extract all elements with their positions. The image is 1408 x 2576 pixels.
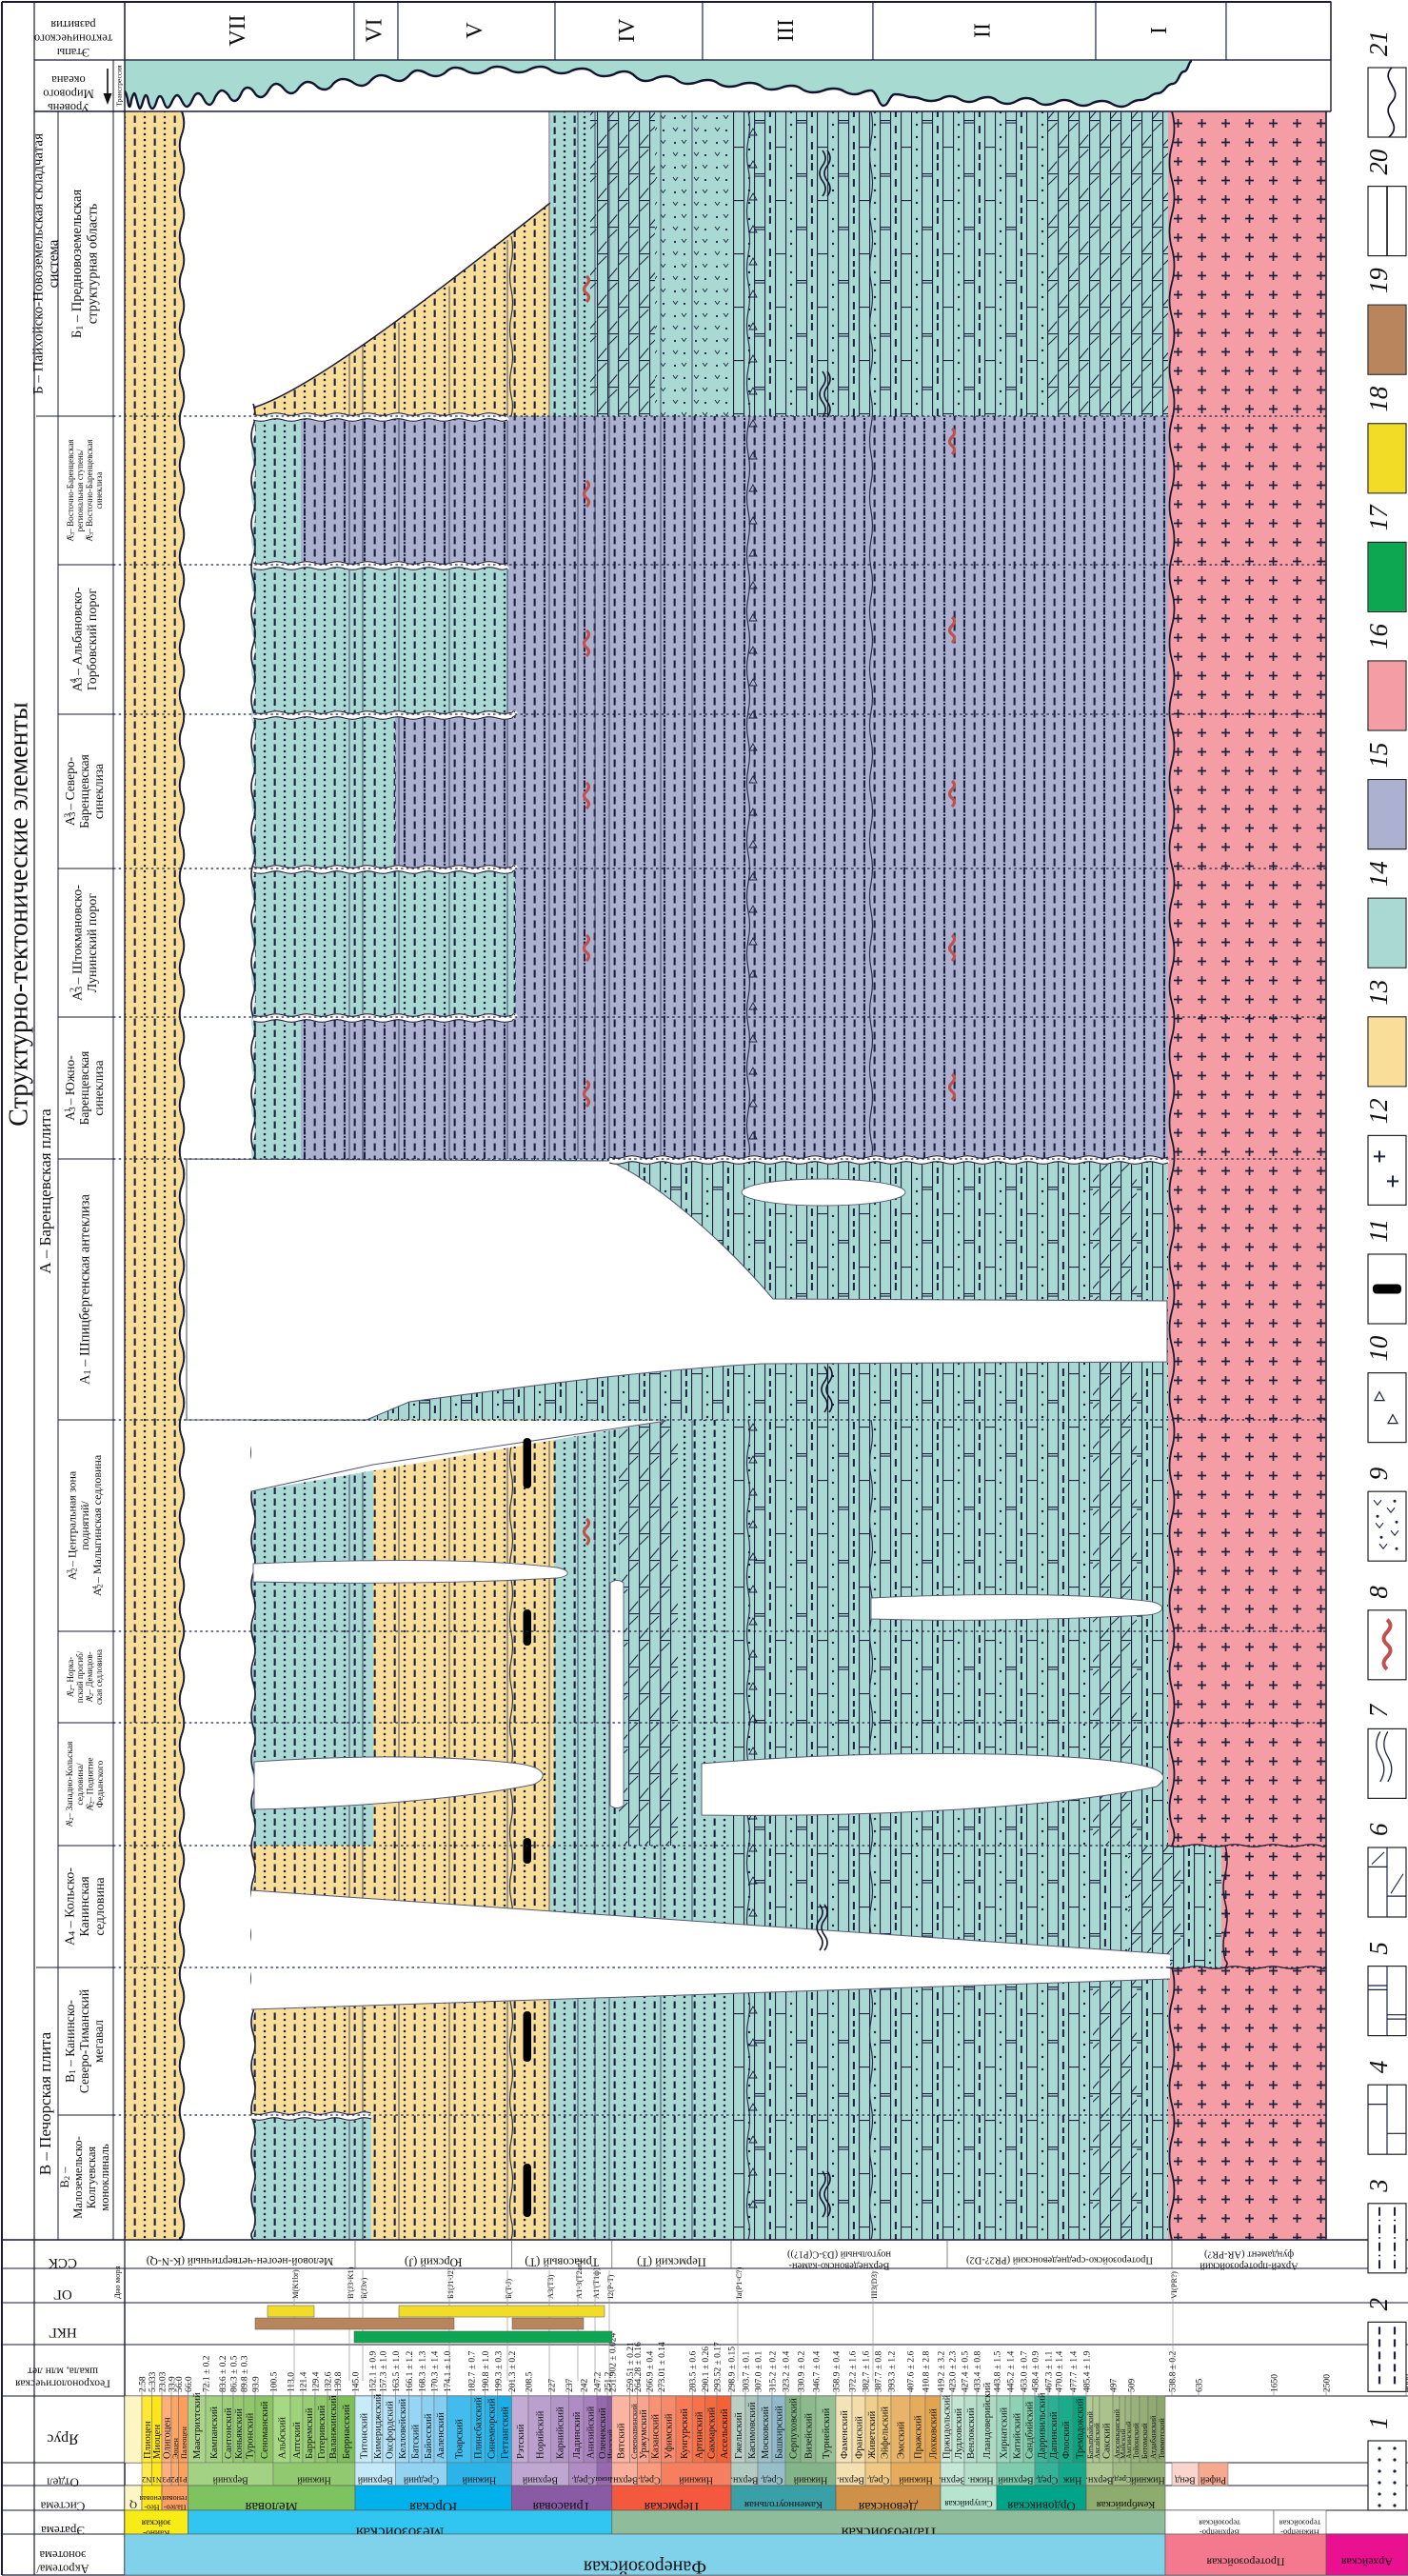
svg-text:Башкирский: Башкирский — [775, 2406, 785, 2459]
svg-text:Лохковский: Лохковский — [929, 2408, 940, 2459]
svg-text:Ниж: Ниж — [1063, 2475, 1082, 2486]
svg-text:Нижний: Нижний — [297, 2475, 331, 2486]
svg-text:синеклиза: синеклиза — [91, 1060, 106, 1115]
svg-text:Турнейский: Турнейский — [822, 2407, 832, 2459]
svg-text:II: II — [971, 23, 996, 38]
svg-text:346.7 ± 0.4: 346.7 ± 0.4 — [813, 2351, 823, 2392]
svg-text:12: 12 — [1364, 1098, 1393, 1124]
svg-text:1: 1 — [1364, 2417, 1393, 2430]
svg-text:Хирнатский: Хирнатский — [1000, 2406, 1010, 2459]
svg-text:Тремадокский: Тремадокский — [1076, 2398, 1086, 2459]
svg-text:358.9 ± 0.4: 358.9 ± 0.4 — [833, 2351, 843, 2392]
svg-text:8: 8 — [1364, 1586, 1393, 1599]
svg-text:121.4: 121.4 — [300, 2371, 309, 2392]
svg-text:Ладинский: Ладинский — [572, 2411, 583, 2459]
svg-text:410.8 ± 2.8: 410.8 ± 2.8 — [922, 2351, 932, 2392]
svg-text:5.333: 5.333 — [149, 2371, 158, 2392]
svg-text:372.2 ± 1.6: 372.2 ± 1.6 — [849, 2351, 859, 2392]
svg-text:Карнийский: Карнийский — [556, 2406, 566, 2459]
svg-text:Венд: Венд — [1175, 2475, 1196, 2486]
svg-text:Уржумский: Уржумский — [639, 2409, 649, 2459]
svg-text:199.3 ± 0.3: 199.3 ± 0.3 — [494, 2351, 504, 2392]
svg-text:Анизийский: Анизийский — [586, 2406, 597, 2459]
svg-text:303.7 ± 0.1: 303.7 ± 0.1 — [743, 2351, 752, 2392]
svg-text:Франский: Франский — [855, 2416, 865, 2459]
svg-text:93.9: 93.9 — [252, 2376, 262, 2392]
svg-text:Сакмарский: Сакмарский — [706, 2406, 717, 2459]
svg-text:10: 10 — [1364, 1335, 1393, 1362]
svg-text:Готеривский: Готеривский — [317, 2405, 327, 2459]
svg-text:А23 – Центральная зона: А23 – Центральная зона — [65, 1470, 78, 1580]
svg-text:VII: VII — [226, 14, 250, 46]
svg-text:Нижний: Нижний — [793, 2475, 827, 2486]
svg-text:2500: 2500 — [1323, 2374, 1333, 2392]
svg-text:Томмотский: Томмотский — [1158, 2418, 1166, 2459]
svg-text:Трансгрессия: Трансгрессия — [115, 65, 124, 107]
svg-text:166.1 ± 1.2: 166.1 ± 1.2 — [406, 2351, 415, 2392]
svg-text:Байосский: Байосский — [424, 2413, 434, 2459]
svg-text:458.4 ± 0.9: 458.4 ± 0.9 — [1032, 2351, 1041, 2392]
svg-text:пский прогиб/: пский прогиб/ — [75, 1650, 85, 1703]
svg-text:21: 21 — [1364, 30, 1393, 56]
svg-text:ноугольный (D3-C(P1?)): ноугольный (D3-C(P1?)) — [787, 2249, 891, 2260]
svg-text:А3(Т3): А3(Т3) — [545, 2274, 555, 2299]
svg-text:538.8 ± 0.2: 538.8 ± 0.2 — [1169, 2351, 1179, 2392]
svg-text:Баренцевская: Баренцевская — [77, 1051, 91, 1126]
svg-text:56.0: 56.0 — [175, 2376, 185, 2392]
svg-text:В – Печорская плита: В – Печорская плита — [36, 2031, 54, 2175]
svg-text:13: 13 — [1364, 980, 1393, 1006]
svg-text:Канинская: Канинская — [78, 1876, 92, 1937]
svg-text:Сред.: Сред. — [761, 2475, 783, 2486]
svg-text:2.58: 2.58 — [139, 2376, 149, 2392]
svg-text:А21 – Западно-Кольская: А21 – Западно-Кольская — [65, 1741, 75, 1827]
svg-text:фундамент (AR-PR?): фундамент (AR-PR?) — [1203, 2249, 1294, 2260]
svg-text:3: 3 — [1364, 2179, 1393, 2193]
svg-text:N1: N1 — [152, 2475, 162, 2485]
svg-text:66.0: 66.0 — [185, 2376, 194, 2392]
svg-text:Рифей: Рифей — [1200, 2475, 1226, 2486]
svg-text:региональная ступень/: региональная ступень/ — [75, 449, 85, 531]
svg-text:Берриасский: Берриасский — [342, 2404, 352, 2459]
svg-text:седловина/: седловина/ — [76, 1763, 86, 1806]
svg-text:174.1 ± 1.0: 174.1 ± 1.0 — [444, 2351, 453, 2392]
svg-text:синеклиза: синеклиза — [94, 472, 104, 509]
svg-text:423.0 ± 2.3: 423.0 ± 2.3 — [949, 2351, 959, 2392]
svg-text:16: 16 — [1364, 624, 1393, 650]
svg-text:Сред.: Сред. — [1112, 2475, 1131, 2485]
svg-text:Эйфельский: Эйфельский — [881, 2406, 891, 2459]
svg-text:113.0: 113.0 — [288, 2372, 297, 2392]
svg-text:237: 237 — [565, 2379, 575, 2393]
svg-text:Пермский (Т): Пермский (Т) — [637, 2255, 706, 2268]
svg-text:А1 – Шпицбергенская антеклиза: А1 – Шпицбергенская антеклиза — [77, 1193, 92, 1385]
svg-text:Архей-протерозойский: Архей-протерозойский — [1200, 2261, 1299, 2271]
svg-text:433.4 ± 0.8: 433.4 ± 0.8 — [974, 2351, 983, 2392]
svg-text:А24 – Демидов-: А24 – Демидов- — [85, 1652, 95, 1703]
svg-text:Дарривильский: Дарривильский — [1038, 2392, 1048, 2459]
svg-text:273.01 ± 0.14: 273.01 ± 0.14 — [658, 2342, 667, 2392]
svg-text:Дно моря: Дно моря — [112, 2266, 122, 2299]
svg-text:293.52 ± 0.17: 293.52 ± 0.17 — [714, 2342, 724, 2392]
svg-text:Сантонский: Сантонский — [224, 2407, 234, 2459]
svg-text:Атдабанский: Атдабанский — [1149, 2415, 1158, 2459]
svg-text:океана: океана — [51, 73, 86, 87]
svg-text:129.4: 129.4 — [312, 2371, 322, 2392]
svg-text:Фаменский: Фаменский — [840, 2410, 850, 2459]
svg-text:Геохронологическая: Геохронологическая — [14, 2378, 109, 2389]
svg-text:Катийский: Катийский — [1013, 2413, 1023, 2459]
svg-text:407.6 ± 2.6: 407.6 ± 2.6 — [907, 2351, 917, 2392]
svg-text:А33 – Северо-: А33 – Северо- — [63, 756, 78, 826]
svg-text:Нижн.: Нижн. — [967, 2475, 993, 2486]
svg-text:терозойская: терозойская — [1279, 2519, 1321, 2528]
svg-text:Протерозойская: Протерозойская — [1206, 2556, 1284, 2569]
svg-text:Сандбийский: Сандбийский — [1025, 2401, 1036, 2459]
svg-text:А36 – Восточно-Баренцевская: А36 – Восточно-Баренцевская — [85, 439, 95, 541]
svg-text:А22 – Поднятие: А22 – Поднятие — [85, 1757, 95, 1810]
svg-text:20: 20 — [1364, 149, 1393, 175]
svg-text:Казанский: Казанский — [651, 2414, 662, 2459]
svg-text:Верхн.: Верхн. — [939, 2475, 966, 2486]
svg-text:ОГ: ОГ — [53, 2286, 72, 2302]
svg-text:синеклиза: синеклиза — [91, 764, 106, 819]
svg-text:Б – Пайхойско-Новоземельская с: Б – Пайхойско-Новоземельская складчатая — [30, 133, 46, 394]
svg-text:635: 635 — [1196, 2379, 1205, 2393]
svg-text:система: система — [46, 239, 61, 288]
svg-text:Ассельский: Ассельский — [720, 2408, 730, 2459]
svg-text:Плиоцен: Плиоцен — [143, 2421, 153, 2459]
svg-text:170.3 ± 1.4: 170.3 ± 1.4 — [431, 2351, 441, 2392]
svg-text:А35 – Восточно-Баренцевская: А35 – Восточно-Баренцевская — [66, 439, 76, 541]
svg-text:В1 – Канинско-: В1 – Канинско- — [63, 2000, 78, 2083]
svg-text:283.5 ± 0.6: 283.5 ± 0.6 — [689, 2351, 699, 2392]
svg-text:Мирового: Мирового — [43, 87, 93, 100]
svg-text:Кембрийская: Кембрийская — [1097, 2499, 1156, 2510]
svg-text:IV: IV — [615, 18, 640, 43]
svg-text:зойская: зойская — [141, 2517, 170, 2527]
svg-text:Дапинский: Дапинский — [1049, 2411, 1060, 2459]
svg-text:III3(D3): III3(D3) — [869, 2271, 879, 2299]
svg-text:Плинсбахский: Плинсбахский — [474, 2397, 485, 2459]
svg-text:Визейский: Визейский — [804, 2413, 815, 2459]
svg-text:VI: VI — [363, 18, 387, 42]
svg-text:201.3 ± 0.2: 201.3 ± 0.2 — [508, 2351, 518, 2392]
svg-text:467.3 ± 1.1: 467.3 ± 1.1 — [1045, 2351, 1055, 2392]
svg-text:Тойонский: Тойонский — [1132, 2423, 1140, 2459]
svg-text:Баренцевская: Баренцевская — [77, 754, 91, 829]
svg-text:485.4 ± 1.9: 485.4 ± 1.9 — [1083, 2351, 1093, 2392]
svg-text:Маастрихтский: Маастрихтский — [192, 2392, 203, 2459]
svg-text:6: 6 — [1364, 1823, 1393, 1836]
svg-text:развития: развития — [50, 18, 95, 31]
svg-text:P1: P1 — [179, 2475, 188, 2485]
svg-text:Сакский: Сакский — [1102, 2423, 1113, 2459]
svg-text:P2: P2 — [170, 2475, 179, 2485]
svg-text:157.3 ± 1.0: 157.3 ± 1.0 — [380, 2351, 389, 2392]
svg-text:Триасовый (Т): Триасовый (Т) — [525, 2255, 599, 2268]
svg-text:мегавал: мегавал — [91, 2020, 106, 2063]
svg-text:Верхн.: Верхн. — [611, 2475, 639, 2486]
svg-text:Вятский: Вятский — [617, 2423, 627, 2459]
svg-text:168.3 ± 1.3: 168.3 ± 1.3 — [419, 2351, 428, 2392]
svg-text:152.1 ± 0.9: 152.1 ± 0.9 — [369, 2351, 379, 2392]
svg-text:Б1(J1-J2): Б1(J1-J2) — [446, 2267, 455, 2299]
svg-text:I2(P-T): I2(P-T) — [605, 2274, 615, 2299]
svg-text:Туронский: Туронский — [246, 2412, 256, 2459]
svg-text:А32 – Штокмановско-: А32 – Штокмановско- — [69, 885, 86, 1001]
svg-text:242: 242 — [581, 2379, 590, 2393]
svg-text:100.5: 100.5 — [270, 2371, 280, 2392]
svg-text:190.8 ± 1.0: 190.8 ± 1.0 — [482, 2351, 491, 2392]
svg-text:Нижний: Нижний — [1131, 2475, 1165, 2486]
svg-text:Горбовский порог: Горбовский порог — [86, 589, 100, 691]
svg-text:А24 – Малыгинская седловина: А24 – Малыгинская седловина — [90, 1454, 104, 1596]
svg-text:453.0 ± 0.7: 453.0 ± 0.7 — [1021, 2351, 1030, 2392]
svg-text:Б1 – Предновоземельская: Б1 – Предновоземельская — [69, 190, 85, 339]
svg-text:Архейская: Архейская — [1341, 2556, 1393, 2569]
svg-text:Артинский: Артинский — [694, 2411, 704, 2459]
svg-text:Отдел: Отдел — [47, 2476, 79, 2490]
svg-text:163.5 ± 1.0: 163.5 ± 1.0 — [392, 2351, 402, 2392]
svg-text:III: III — [774, 19, 799, 42]
svg-text:Эратема: Эратема — [41, 2524, 85, 2538]
svg-text:М(K1br): М(K1br) — [290, 2269, 300, 2299]
svg-text:Фанерозойская: Фанерозойская — [584, 2557, 706, 2576]
svg-text:443.8 ± 1.5: 443.8 ± 1.5 — [994, 2351, 1003, 2392]
svg-text:НКГ: НКГ — [49, 2325, 77, 2340]
svg-text:2: 2 — [1364, 2298, 1393, 2311]
svg-text:терозойская: терозойская — [1199, 2519, 1240, 2528]
svg-text:Верхн.: Верхн. — [837, 2475, 864, 2486]
svg-text:509: 509 — [1128, 2379, 1138, 2393]
svg-text:Коньякский: Коньякский — [234, 2408, 245, 2459]
svg-text:V: V — [463, 22, 487, 39]
svg-text:Живетский: Живетский — [867, 2410, 878, 2459]
svg-text:Сеноманский: Сеноманский — [260, 2401, 270, 2459]
svg-text:497: 497 — [1110, 2379, 1120, 2393]
svg-text:387.7 ± 0.8: 387.7 ± 0.8 — [875, 2351, 884, 2392]
svg-text:Батский: Батский — [411, 2424, 422, 2459]
svg-text:Малоземельско-: Малоземельско- — [71, 2136, 85, 2219]
svg-text:419.2 ± 3.2: 419.2 ± 3.2 — [938, 2351, 947, 2392]
svg-text:Московский: Московский — [761, 2406, 771, 2459]
svg-text:266.9 ± 0.4: 266.9 ± 0.4 — [645, 2351, 655, 2392]
svg-text:Оксфордский: Оксфордский — [385, 2401, 395, 2459]
svg-text:86.3 ± 0.5: 86.3 ± 0.5 — [230, 2355, 240, 2392]
svg-text:Флоский: Флоский — [1061, 2421, 1072, 2459]
svg-text:Аптский: Аптский — [292, 2422, 303, 2459]
svg-text:Лунинский порог: Лунинский порог — [86, 893, 100, 993]
svg-text:Силурийская: Силурийская — [944, 2499, 992, 2508]
svg-text:Уровень: Уровень — [48, 101, 89, 114]
svg-text:Средний: Средний — [403, 2475, 439, 2486]
svg-text:23.03: 23.03 — [159, 2371, 169, 2392]
svg-text:Альбский: Альбский — [278, 2417, 288, 2459]
svg-text:Лландоверийский: Лландоверийский — [982, 2382, 993, 2459]
svg-text:15: 15 — [1364, 743, 1393, 769]
svg-text:Нижний: Нижний — [899, 2475, 933, 2486]
svg-text:геновая: геновая — [139, 2494, 164, 2503]
svg-text:седловина: седловина — [93, 1877, 108, 1936]
svg-text:Верхний: Верхний — [522, 2475, 558, 2486]
svg-text:Венлокский: Венлокский — [966, 2407, 977, 2459]
svg-text:Этапы: Этапы — [56, 46, 89, 59]
svg-text:тектонического: тектонического — [34, 31, 112, 45]
svg-text:А1'(Т1ф): А1'(Т1ф) — [591, 2267, 601, 2299]
svg-text:Верхний: Верхний — [357, 2475, 393, 2486]
svg-text:315.2 ± 0.2: 315.2 ± 0.2 — [769, 2351, 779, 2392]
svg-text:330.9 ± 0.2: 330.9 ± 0.2 — [798, 2351, 807, 2392]
svg-text:19: 19 — [1364, 268, 1393, 294]
svg-text:Нижний: Нижний — [462, 2475, 496, 2486]
svg-text:Верхний: Верхний — [998, 2475, 1034, 2486]
svg-text:ская седловина: ская седловина — [94, 1649, 104, 1705]
svg-text:Сред.: Сред. — [1036, 2475, 1059, 2486]
svg-text:477.7 ± 1.4: 477.7 ± 1.4 — [1070, 2351, 1080, 2392]
svg-text:Сред.: Сред. — [867, 2475, 890, 2486]
svg-text:393.3 ± 1.2: 393.3 ± 1.2 — [888, 2351, 898, 2392]
svg-text:Эмсский: Эмсский — [897, 2421, 907, 2459]
svg-text:11: 11 — [1364, 1219, 1393, 1243]
svg-text:Норийский: Норийский — [535, 2410, 545, 2459]
svg-text:А34 – Альбановско-: А34 – Альбановско- — [69, 587, 86, 691]
svg-text:18: 18 — [1364, 386, 1393, 412]
svg-text:Q: Q — [129, 2499, 137, 2510]
svg-text:эонотема: эонотема — [39, 2548, 86, 2562]
svg-text:шкала, млн лет: шкала, млн лет — [28, 2365, 98, 2376]
svg-text:Кимериджский: Кимериджский — [373, 2393, 384, 2459]
svg-text:моноклиналь: моноклиналь — [98, 2144, 111, 2211]
svg-text:А23 – Норка-: А23 – Норка- — [66, 1657, 76, 1698]
svg-text:323.2 ± 0.4: 323.2 ± 0.4 — [783, 2351, 792, 2392]
svg-text:132.6: 132.6 — [325, 2371, 334, 2392]
svg-text:Уфимский: Уфимский — [664, 2413, 675, 2459]
svg-text:Сред.: Сред. — [638, 2475, 661, 2486]
svg-text:Ботомский: Ботомский — [1140, 2423, 1149, 2459]
svg-text:N2: N2 — [142, 2475, 151, 2485]
svg-text:470.0 ± 1.4: 470.0 ± 1.4 — [1056, 2351, 1065, 2392]
svg-text:А – Баренцевская плита: А – Баренцевская плита — [36, 1108, 54, 1274]
svg-text:Рэтский: Рэтский — [516, 2424, 526, 2459]
svg-text:Меловой-неоген-четвертичный (K: Меловой-неоген-четвертичный (K-N-Q) — [147, 2255, 334, 2266]
svg-text:14: 14 — [1364, 861, 1393, 887]
svg-text:I: I — [1147, 27, 1172, 34]
svg-text:Верхнедевонско-камен-: Верхнедевонско-камен- — [788, 2261, 890, 2271]
svg-text:7: 7 — [1364, 1703, 1393, 1717]
svg-text:Система: Система — [40, 2500, 85, 2514]
svg-text:поднятий/: поднятий/ — [78, 1501, 91, 1550]
svg-text:VI(PR?): VI(PR?) — [1169, 2271, 1179, 2299]
svg-text:89.8 ± 0.3: 89.8 ± 0.3 — [241, 2355, 250, 2392]
svg-text:P3: P3 — [163, 2475, 171, 2485]
svg-text:139.8: 139.8 — [334, 2371, 344, 2392]
svg-text:Сред.: Сред. — [571, 2475, 594, 2486]
svg-text:382.7 ± 1.6: 382.7 ± 1.6 — [863, 2351, 872, 2392]
svg-text:5: 5 — [1364, 1942, 1393, 1955]
svg-text:264.28 ± 0.16: 264.28 ± 0.16 — [634, 2342, 644, 2392]
svg-text:Верхн.: Верхн. — [1086, 2475, 1114, 2486]
svg-text:1650: 1650 — [1271, 2374, 1280, 2392]
svg-text:Каменноугольная: Каменноугольная — [744, 2499, 823, 2510]
svg-text:геновая: геновая — [162, 2494, 187, 2503]
svg-text:Федынского: Федынского — [96, 1761, 106, 1808]
svg-text:290.1 ± 0.26: 290.1 ± 0.26 — [702, 2346, 711, 2392]
svg-text:Лудловский: Лудловский — [954, 2407, 964, 2459]
svg-text:Гжельский: Гжельский — [734, 2412, 744, 2459]
svg-text:Пржидольский: Пржидольский — [942, 2394, 953, 2459]
svg-text:Геттангский: Геттангский — [501, 2406, 511, 2459]
svg-text:Нижний: Нижний — [679, 2475, 713, 2486]
svg-text:298.9 ± 0.15: 298.9 ± 0.15 — [728, 2346, 738, 2392]
svg-text:145.0: 145.0 — [352, 2371, 362, 2392]
svg-text:Синемюрский: Синемюрский — [487, 2398, 498, 2459]
svg-text:83.6 ± 0.2: 83.6 ± 0.2 — [219, 2355, 228, 2392]
svg-text:427.4 ± 0.5: 427.4 ± 0.5 — [962, 2351, 971, 2392]
svg-text:Серпуховский: Серпуховский — [789, 2398, 800, 2459]
svg-text:Касимовский: Касимовский — [747, 2402, 758, 2459]
svg-text:А1-3(Т2an): А1-3(Т2an) — [574, 2260, 584, 2299]
svg-text:Кампанский: Кампанский — [209, 2406, 220, 2459]
svg-text:Кунгурский: Кунгурский — [680, 2408, 690, 2459]
svg-text:Юрский (J): Юрский (J) — [405, 2255, 462, 2268]
svg-text:4: 4 — [1364, 2061, 1393, 2074]
svg-text:Северо-Тиманский: Северо-Тиманский — [77, 1989, 91, 2093]
svg-text:208.5: 208.5 — [526, 2371, 535, 2392]
svg-text:Б(T-J): Б(T-J) — [504, 2279, 513, 2299]
svg-text:307.0 ± 0.1: 307.0 ± 0.1 — [755, 2351, 764, 2392]
svg-text:9: 9 — [1364, 1467, 1393, 1480]
svg-text:Б(J3v): Б(J3v) — [359, 2277, 368, 2299]
svg-text:ССК: ССК — [48, 2255, 77, 2270]
svg-text:Тоарский: Тоарский — [455, 2419, 466, 2459]
svg-text:Барремский: Барремский — [305, 2407, 315, 2459]
svg-text:17: 17 — [1364, 504, 1393, 531]
svg-text:Протерозойско-среднедевонский: Протерозойско-среднедевонский (PR2?-D2) — [965, 2255, 1153, 2266]
svg-text:Палеоцен: Палеоцен — [180, 2426, 188, 2459]
svg-text:Iа(P1-C?): Iа(P1-C?) — [734, 2266, 744, 2299]
svg-text:Верхний: Верхний — [212, 2475, 248, 2486]
svg-text:Ярус: Ярус — [47, 2431, 79, 2447]
svg-text:структурная область: структурная область — [85, 203, 100, 324]
svg-text:445.2 ± 1.4: 445.2 ± 1.4 — [1007, 2351, 1017, 2392]
svg-text:Ааленский: Ааленский — [436, 2412, 446, 2459]
svg-text:А31 – Южно-: А31 – Южно- — [63, 1055, 78, 1121]
svg-text:Пражский: Пражский — [914, 2415, 924, 2459]
svg-text:182.7 ± 0.7: 182.7 ± 0.7 — [468, 2351, 478, 2392]
svg-text:Валанжинский: Валанжинский — [328, 2395, 339, 2459]
svg-text:В'(J3-K1): В'(J3-K1) — [346, 2266, 355, 2299]
svg-text:72.1 ± 0.2: 72.1 ± 0.2 — [203, 2355, 212, 2392]
svg-text:Келловейский: Келловейский — [398, 2398, 408, 2459]
svg-text:Акротема/: Акротема/ — [36, 2563, 89, 2576]
svg-text:Титонский: Титонский — [360, 2413, 370, 2459]
svg-text:Верхн.: Верхн. — [731, 2475, 759, 2486]
svg-text:Структурно-тектонические элеме: Структурно-тектонические элементы — [4, 702, 33, 1127]
svg-text:Колгуевская: Колгуевская — [85, 2147, 98, 2209]
